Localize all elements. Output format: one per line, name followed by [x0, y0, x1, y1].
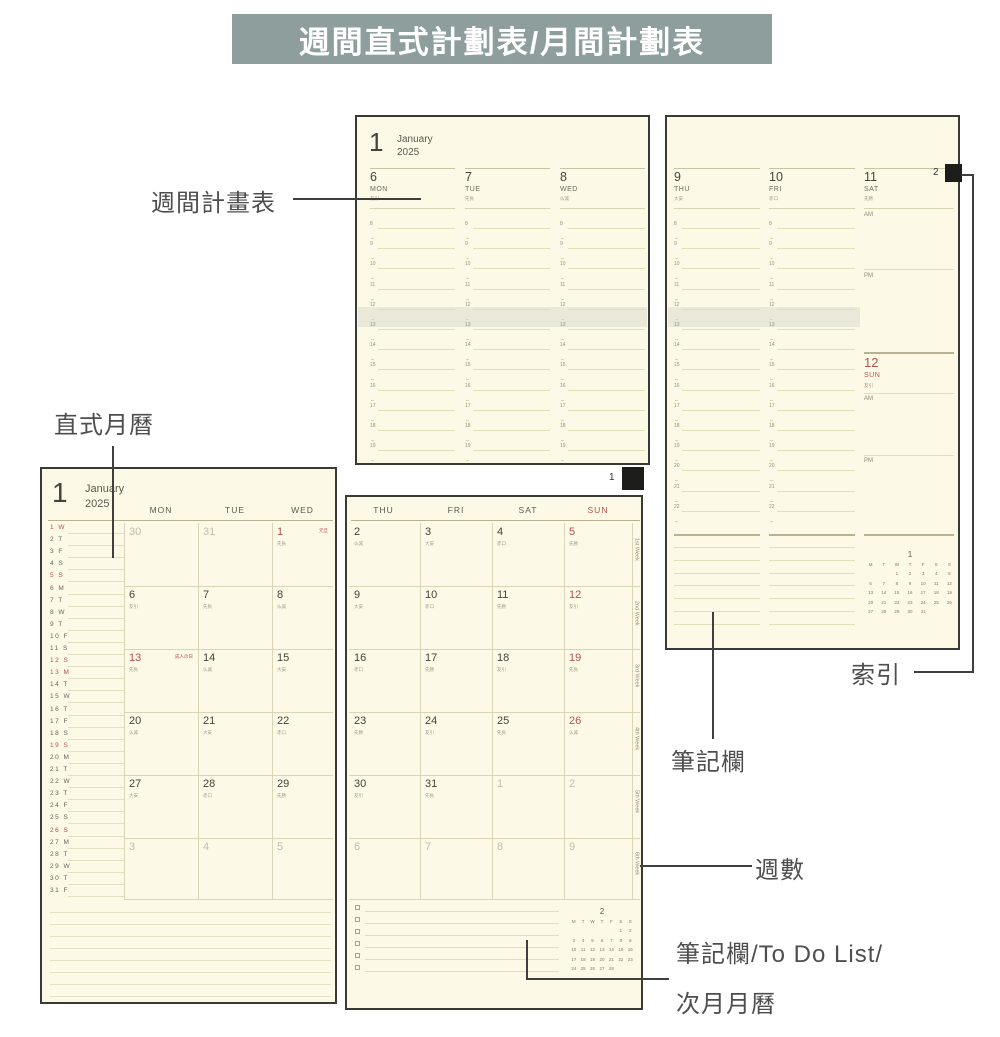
weekly-left-col-mon-halfhour-tick — [371, 339, 374, 340]
weekly-right-col-thu-halfhour-tick — [675, 480, 678, 481]
grid-vline — [124, 523, 125, 899]
side-list-rule — [68, 557, 124, 558]
monthly-mini-calendar-week-row-3-cell: 12 — [588, 947, 597, 952]
date-cell-rokuyo: 大安 — [354, 604, 363, 610]
date-cell-number: 29 — [277, 778, 289, 790]
weekly-left-col-tue-halfhour-tick — [466, 379, 469, 380]
sat-am-label: AM — [864, 212, 873, 218]
side-list-entry: 16 T — [50, 706, 69, 713]
weekly-left-col-tue-day-name: TUE — [465, 186, 481, 193]
weekly-left-col-tue-halfhour-tick — [466, 420, 469, 421]
week-number-label: 5th Week — [634, 790, 640, 813]
grid-hline — [349, 649, 640, 650]
callout-line-week-number — [640, 865, 752, 867]
weekly-left-col-tue-hour-label: 8 — [465, 221, 468, 227]
date-cell-rokuyo: 先勝 — [569, 541, 578, 547]
date-cell-number: 25 — [497, 715, 509, 727]
weekly-mini-calendar-week-row-3-cell: 19 — [943, 590, 956, 595]
weekly-left-col-mon-halfhour-tick — [371, 400, 374, 401]
date-cell-rokuyo: 赤口 — [497, 541, 506, 547]
sat-mid-rule — [864, 269, 954, 270]
weekly-left-col-mon-hour-line — [378, 410, 455, 411]
weekly-left-col-mon-hour-label: 11 — [370, 282, 375, 288]
monthly-mini-calendar-week-row-3-cell: 14 — [607, 947, 616, 952]
weekly-right-col-fri-hour-line — [777, 470, 855, 471]
notes-rule — [50, 924, 331, 925]
weekly-left-col-wed-halfhour-tick — [561, 400, 564, 401]
monthly-dow-sun: SUN — [564, 505, 632, 515]
weekly-left-col-tue-halfhour-tick — [466, 400, 469, 401]
monthly-mini-calendar-week-row-2-cell: 6 — [597, 938, 606, 943]
side-list-entry: 15 W — [50, 693, 71, 700]
callout-line-index-bottom — [914, 671, 974, 673]
weekly-right-col-thu-hour-line — [682, 369, 760, 370]
weekly-left-col-tue-hour-line — [473, 410, 550, 411]
weekly-left-col-wed-hour-label: 15 — [560, 362, 566, 368]
monthly-mini-calendar-week-row-5-cell — [626, 966, 635, 971]
weekly-mini-calendar-week-row-3-cell: 14 — [877, 590, 890, 595]
weekly-mini-calendar-week-row-5-cell: 29 — [890, 609, 903, 614]
side-list-rule — [68, 836, 124, 837]
weekly-left-col-mon-halfhour-tick — [371, 420, 374, 421]
weekly-left-col-wed-hour-line — [568, 228, 645, 229]
monthly-planner-right-page: THUFRISATSUN2仏滅3大安4赤口5先勝9大安10赤口11先勝12友引1… — [345, 495, 643, 1010]
side-list-entry: 10 F — [50, 633, 69, 640]
side-list-rule — [68, 533, 124, 534]
weekly-left-col-wed-hour-line — [568, 268, 645, 269]
date-cell-rokuyo: 友引 — [354, 793, 363, 799]
weekly-right-col-fri-day-number: 10 — [769, 170, 783, 184]
weekly-left-col-mon-halfhour-tick — [371, 460, 374, 461]
weekly-right-col-sat-section-rule — [864, 534, 954, 536]
weekly-right-col-fri-halfhour-tick — [770, 440, 773, 441]
side-list-rule — [68, 823, 124, 824]
weekly-left-col-tue-halfhour-tick — [466, 258, 469, 259]
date-cell-rokuyo: 先負 — [277, 541, 286, 547]
monthly-dow-sat: SAT — [492, 505, 564, 515]
weekly-right-col-fri-halfhour-tick — [770, 480, 773, 481]
weekly-mini-calendar-week-row-3-cell: 13 — [864, 590, 877, 595]
monthly-mini-calendar-week-row-2-cell: 3 — [569, 938, 578, 943]
weekly-mini-calendar-dow-row-cell: F — [917, 562, 930, 567]
grid-vline — [198, 523, 199, 899]
weekly-mini-calendar-dow-row-cell: S — [930, 562, 943, 567]
weekly-left-col-mon-hour-line — [378, 450, 455, 451]
date-cell-rokuyo: 先負 — [425, 793, 434, 799]
weekly-year: 2025 — [397, 147, 419, 158]
sun-pm-label: PM — [864, 458, 873, 464]
weekly-right-col-thu-day-number: 9 — [674, 170, 681, 184]
date-cell-rokuyo: 赤口 — [425, 604, 434, 610]
weekly-right-col-fri-note-rule — [769, 560, 855, 561]
side-list-rule — [68, 690, 124, 691]
weekly-left-col-wed-hour-label: 17 — [560, 403, 566, 409]
weekly-left-col-mon-hour-line — [378, 268, 455, 269]
weekly-left-col-tue-hour-label: 11 — [465, 282, 470, 288]
date-cell-rokuyo: 大安 — [425, 541, 434, 547]
weekly-left-col-wed-halfhour-tick — [561, 299, 564, 300]
weekly-mini-calendar-week-row-2-cell: 8 — [890, 581, 903, 586]
weekly-right-col-fri-halfhour-tick — [770, 460, 773, 461]
weekly-right-col-thu-note-rule — [674, 624, 760, 625]
weekly-left-col-mon-hour-line — [378, 329, 455, 330]
weekly-left-col-tue-hour-line — [473, 309, 550, 310]
weekly-right-col-fri-note-rule — [769, 547, 855, 548]
monthly-mini-calendar-week-row-1-cell — [578, 928, 587, 933]
monthly-mini-calendar-dow-row-cell: M — [569, 919, 578, 924]
sun-top-rule — [864, 352, 954, 354]
tab-1-number: 1 — [609, 472, 615, 483]
weekly-left-col-mon-hour-line — [378, 228, 455, 229]
weekly-right-col-fri-halfhour-tick — [770, 420, 773, 421]
date-cell-rokuyo: 仏滅 — [569, 730, 578, 736]
date-cell-number: 5 — [569, 526, 575, 538]
date-cell-number: 6 — [354, 841, 360, 853]
side-list-rule — [68, 545, 124, 546]
weekly-left-col-tue-halfhour-tick — [466, 359, 469, 360]
weekly-left-col-wed-day-name: WED — [560, 186, 578, 193]
weekly-left-col-wed-hour-label: 18 — [560, 423, 566, 429]
weekly-right-col-thu-hour-label: 10 — [674, 261, 680, 267]
weekly-right-col-fri-hour-line — [777, 390, 855, 391]
date-cell-rokuyo: 仏滅 — [203, 667, 212, 673]
weekly-right-col-thu-hour-line — [682, 289, 760, 290]
weekly-left-col-wed-hour-line — [568, 390, 645, 391]
date-cell-number: 27 — [129, 778, 141, 790]
date-cell-number: 17 — [425, 652, 437, 664]
weekly-right-col-fri-hour-line — [777, 491, 855, 492]
weekly-right-col-fri-hour-line — [777, 430, 855, 431]
weekly-right-col-thu-halfhour-tick — [675, 400, 678, 401]
weekly-mini-calendar-week-row-2: 6789101112 — [864, 581, 956, 586]
weekly-left-col-wed-hour-line — [568, 430, 645, 431]
weekly-mini-calendar-week-row-5-cell: 30 — [903, 609, 916, 614]
date-cell-number: 8 — [277, 589, 283, 601]
weekly-mini-calendar-week-row-5-cell — [943, 609, 956, 614]
date-cell-rokuyo: 先勝 — [425, 667, 434, 673]
weekly-right-col-fri-rokuyo: 赤口 — [769, 196, 778, 202]
side-list-entry: 21 T — [50, 766, 69, 773]
weekly-right-col-thu-halfhour-tick — [675, 238, 678, 239]
weekly-left-col-tue-halfhour-tick — [466, 460, 469, 461]
weekly-right-col-fri-hour-line — [777, 268, 855, 269]
side-list-entry: 25 S — [50, 814, 69, 821]
weekly-mini-calendar-week-row-2-cell: 9 — [903, 581, 916, 586]
monthly-mini-calendar-week-row-3-cell: 16 — [626, 947, 635, 952]
weekly-month-number: 1 — [369, 127, 383, 158]
weekly-right-col-fri-hour-label: 19 — [769, 443, 775, 449]
weekly-right-col-thu-halfhour-tick — [675, 420, 678, 421]
date-cell-rokuyo: 先勝 — [497, 604, 506, 610]
side-list-rule — [68, 872, 124, 873]
weekly-right-col-fri-section-rule — [769, 534, 855, 536]
weekly-left-col-tue-hour-label: 14 — [465, 342, 471, 348]
weekly-left-col-tue-hour-line — [473, 369, 550, 370]
weekly-mini-calendar-week-row-1-cell: 2 — [903, 571, 916, 576]
side-list-rule — [68, 702, 124, 703]
side-list-entry: 23 T — [50, 790, 69, 797]
side-list-entry: 31 F — [50, 887, 69, 894]
side-list-entry: 24 F — [50, 802, 69, 809]
weekly-right-col-thu-hour-line — [682, 450, 760, 451]
weekly-mini-calendar-week-row-3-cell: 15 — [890, 590, 903, 595]
monthly-mini-calendar-dow-row-cell: W — [588, 919, 597, 924]
side-list-rule — [68, 618, 124, 619]
weekly-left-col-wed-halfhour-tick — [561, 278, 564, 279]
weekly-right-col-thu-halfhour-tick — [675, 299, 678, 300]
date-cell-number: 18 — [497, 652, 509, 664]
weekly-right-col-thu-hour-line — [682, 309, 760, 310]
weekly-right-col-fri-hour-label: 14 — [769, 342, 775, 348]
weekly-mini-calendar-dow-row-cell: W — [890, 562, 903, 567]
weekly-left-col-tue-hour-line — [473, 268, 550, 269]
weekly-left-col-wed-head-rule — [560, 208, 645, 209]
side-list-rule — [68, 775, 124, 776]
weekly-left-col-mon-day-number: 6 — [370, 170, 377, 184]
weekly-left-col-tue-rokuyo: 先負 — [465, 196, 474, 202]
weekly-right-col-thu-hour-line — [682, 511, 760, 512]
weekly-mini-calendar-week-row-3-cell: 18 — [930, 590, 943, 595]
date-cell-number: 16 — [354, 652, 366, 664]
callout-line-weekly — [293, 198, 421, 200]
weekly-right-col-thu-hour-line — [682, 470, 760, 471]
date-cell-rokuyo: 仏滅 — [354, 541, 363, 547]
notes-rule — [50, 984, 331, 985]
weekly-right-col-fri-hour-label: 22 — [769, 504, 775, 510]
side-list-entry: 20 M — [50, 754, 70, 761]
monthly-mini-calendar-week-row-4-cell: 21 — [607, 957, 616, 962]
side-list-entry: 13 M — [50, 669, 70, 676]
weekly-mini-calendar-week-row-1-cell: 5 — [943, 571, 956, 576]
sat-pm-label: PM — [864, 273, 873, 279]
date-cell-holiday: 元旦 — [272, 528, 328, 534]
weekly-planner-left-page: 1 January 2025 6MON友引8910111213141516171… — [355, 115, 650, 465]
side-list-entry: 4 S — [50, 560, 64, 567]
weekly-left-col-mon-hour-line — [378, 390, 455, 391]
date-cell-number: 23 — [354, 715, 366, 727]
weekly-mini-calendar-week-row-2-cell: 7 — [877, 581, 890, 586]
tab-1-marker — [622, 467, 644, 490]
weekly-right-col-thu-note-rule — [674, 573, 760, 574]
sun-rokuyo: 友引 — [864, 383, 873, 389]
weekly-right-col-thu-hour-line — [682, 390, 760, 391]
callout-line-notes — [712, 612, 714, 739]
todo-rule — [365, 959, 559, 960]
weekly-right-col-thu-halfhour-tick — [675, 501, 678, 502]
sun-pm-rule — [864, 455, 954, 456]
date-cell-rokuyo: 大安 — [277, 667, 286, 673]
weekly-left-col-wed-hour-line — [568, 450, 645, 451]
side-list-entry: 12 S — [50, 657, 69, 664]
weekly-left-col-wed-halfhour-tick — [561, 359, 564, 360]
monthly-year: 2025 — [85, 498, 109, 510]
callout-label-weekly: 週間計畫表 — [151, 183, 276, 218]
weekly-mini-calendar-week-row-4-cell: 20 — [864, 600, 877, 605]
weekly-mini-calendar-week-row-1-cell — [877, 571, 890, 576]
side-list-entry: 2 T — [50, 536, 64, 543]
weekly-left-col-wed-halfhour-tick — [561, 258, 564, 259]
week-number-label: 4th Week — [634, 727, 640, 750]
todo-checkbox — [355, 965, 360, 970]
date-cell-number: 4 — [203, 841, 209, 853]
weekly-mini-calendar-week-row-1-cell: 1 — [890, 571, 903, 576]
weekly-mini-calendar-week-row-1-cell: 3 — [917, 571, 930, 576]
side-list-entry: 1 W — [50, 524, 66, 531]
side-list-rule — [68, 848, 124, 849]
side-list-entry: 19 S — [50, 742, 69, 749]
side-list-rule — [68, 739, 124, 740]
monthly-mini-calendar-week-row-4-cell: 19 — [588, 957, 597, 962]
weekly-mini-calendar-week-row-3: 13141516171819 — [864, 590, 956, 595]
side-list-entry: 14 T — [50, 681, 69, 688]
monthly-planner-left-page: 1 January 2025 MONTUEWED1 W2 T3 F4 S5 S6… — [40, 467, 337, 1004]
weekly-right-col-thu-note-rule — [674, 598, 760, 599]
weekly-right-col-fri-halfhour-tick — [770, 258, 773, 259]
date-cell-number: 26 — [569, 715, 581, 727]
notes-rule — [50, 972, 331, 973]
monthly-mini-calendar-week-row-1-cell — [607, 928, 616, 933]
weekly-mini-calendar-dow-row-cell: T — [877, 562, 890, 567]
date-cell-number: 30 — [129, 526, 141, 538]
weekly-mini-calendar-week-row-2-cell: 6 — [864, 581, 877, 586]
weekly-left-col-wed-halfhour-tick — [561, 440, 564, 441]
weekly-right-col-thu-hour-line — [682, 491, 760, 492]
weekly-right-col-thu-hour-label: 14 — [674, 342, 680, 348]
date-cell-number: 4 — [497, 526, 503, 538]
weekly-left-col-tue-hour-label: 12 — [465, 302, 471, 308]
weekly-right-col-thu-hour-label: 9 — [674, 241, 677, 247]
side-list-rule — [68, 630, 124, 631]
weekly-mini-calendar-dow-row-cell: S — [943, 562, 956, 567]
side-list-rule — [68, 569, 124, 570]
callout-line-index-vertical — [972, 174, 974, 672]
sun-am-label: AM — [864, 396, 873, 402]
side-list-rule — [68, 787, 124, 788]
weekly-left-col-wed-hour-line — [568, 369, 645, 370]
date-cell-rokuyo: 仏滅 — [277, 604, 286, 610]
weekly-mini-calendar-week-row-2-cell: 10 — [917, 581, 930, 586]
weekly-right-col-fri-halfhour-tick — [770, 359, 773, 360]
weekly-right-col-thu-hour-line — [682, 228, 760, 229]
monthly-mini-calendar-week-row-4-cell: 23 — [626, 957, 635, 962]
weekly-left-col-mon-hour-label: 10 — [370, 261, 376, 267]
weekly-left-col-mon-hour-label: 17 — [370, 403, 376, 409]
notes-rule — [50, 960, 331, 961]
grid-hline — [124, 775, 333, 776]
monthly-mini-calendar-dow-row-cell: S — [616, 919, 625, 924]
side-list-rule — [68, 678, 124, 679]
weekly-right-col-fri-hour-line — [777, 248, 855, 249]
weekly-right-col-thu-hour-label: 18 — [674, 423, 680, 429]
side-list-rule — [68, 715, 124, 716]
weekly-right-col-fri-halfhour-tick — [770, 339, 773, 340]
week-number-label: 6th Week — [634, 852, 640, 875]
callout-line-todo-vertical — [526, 940, 528, 979]
grid-vline — [632, 523, 633, 899]
weekly-right-col-fri-hour-label: 21 — [769, 484, 775, 490]
weekly-right-col-thu-note-rule — [674, 611, 760, 612]
weekly-left-col-mon-hour-line — [378, 248, 455, 249]
date-cell-rokuyo: 友引 — [129, 604, 138, 610]
weekly-mini-calendar-dow-row-cell: T — [903, 562, 916, 567]
weekly-left-col-mon-halfhour-tick — [371, 379, 374, 380]
monthly-mini-calendar-week-row-3-cell: 15 — [616, 947, 625, 952]
sun-am-rule — [864, 393, 954, 394]
date-cell-number: 30 — [354, 778, 366, 790]
side-list-rule — [68, 860, 124, 861]
weekly-left-col-wed-hour-line — [568, 329, 645, 330]
monthly-dow-fri: FRI — [420, 505, 492, 515]
weekly-left-col-tue-hour-label: 16 — [465, 383, 471, 389]
side-list-entry: 22 W — [50, 778, 71, 785]
callout-label-todo-line2: 次月月曆 — [676, 984, 776, 1019]
date-cell-number: 19 — [569, 652, 581, 664]
weekly-left-col-tue-hour-label: 17 — [465, 403, 471, 409]
weekly-left-col-mon-day-name: MON — [370, 186, 388, 193]
date-cell-number: 6 — [129, 589, 135, 601]
side-list-entry: 27 M — [50, 839, 70, 846]
weekly-right-col-fri-hour-label: 13 — [769, 322, 775, 328]
weekly-left-col-wed-halfhour-tick — [561, 339, 564, 340]
weekly-left-col-mon-hour-label: 8 — [370, 221, 373, 227]
weekly-right-col-fri-hour-line — [777, 410, 855, 411]
date-cell-number: 10 — [425, 589, 437, 601]
weekly-left-col-tue-halfhour-tick — [466, 339, 469, 340]
weekly-right-col-fri-head-rule — [769, 208, 855, 209]
weekly-left-col-wed-hour-label: 10 — [560, 261, 566, 267]
weekly-left-col-wed-hour-label: 19 — [560, 443, 566, 449]
weekly-mini-calendar-week-row-4-cell: 24 — [917, 600, 930, 605]
monthly-mini-calendar-dow-row-cell: T — [597, 919, 606, 924]
weekly-mini-calendar-week-row-5: 2728293031 — [864, 609, 956, 614]
weekly-left-col-wed-halfhour-tick — [561, 238, 564, 239]
monthly-mini-calendar-dow-row-cell: T — [578, 919, 587, 924]
monthly-mini-calendar-dow-row-cell: F — [607, 919, 616, 924]
weekly-right-col-thu-halfhour-tick — [675, 460, 678, 461]
monthly-dow-wed: WED — [272, 505, 333, 515]
side-list-entry: 30 T — [50, 875, 69, 882]
todo-rule — [365, 923, 559, 924]
weekly-left-col-wed-hour-label: 11 — [560, 282, 565, 288]
weekly-right-col-fri-halfhour-tick — [770, 400, 773, 401]
weekly-mini-calendar-week-row-4-cell: 25 — [930, 600, 943, 605]
side-list-rule — [68, 606, 124, 607]
weekly-left-col-mon-halfhour-tick — [371, 278, 374, 279]
weekly-right-col-thu-halfhour-tick — [675, 379, 678, 380]
weekly-left-col-tue-hour-label: 18 — [465, 423, 471, 429]
planner-promo-diagram: 週間直式計劃表/月間計劃表 1 January 2025 6MON友引89101… — [0, 0, 1000, 1037]
weekly-right-col-fri-note-rule — [769, 598, 855, 599]
weekly-mini-calendar-week-row-4-cell: 23 — [903, 600, 916, 605]
side-list-rule — [68, 884, 124, 885]
monthly-mini-calendar-week-row-4: 17181920212223 — [569, 957, 635, 962]
weekly-left-col-tue-halfhour-tick — [466, 278, 469, 279]
week-number-label: 2nd Week — [634, 601, 640, 626]
weekly-left-col-tue-head-rule — [465, 208, 550, 209]
grid-hline — [349, 712, 640, 713]
weekly-planner-right-page: 9THU大安891011121314151617181920212210FRI赤… — [665, 115, 960, 650]
weekly-right-col-fri-note-rule — [769, 585, 855, 586]
weekly-left-col-tue-top-rule — [465, 168, 550, 169]
weekly-right-col-thu-hour-label: 16 — [674, 383, 680, 389]
weekly-mini-calendar-dow-row-cell: M — [864, 562, 877, 567]
weekly-right-col-fri-hour-line — [777, 511, 855, 512]
date-cell-number: 31 — [203, 526, 215, 538]
date-cell-rokuyo: 友引 — [425, 730, 434, 736]
todo-rule — [365, 935, 559, 936]
weekly-mini-calendar-week-row-2-cell: 11 — [930, 581, 943, 586]
week-number-label: 3rd Week — [634, 664, 640, 687]
